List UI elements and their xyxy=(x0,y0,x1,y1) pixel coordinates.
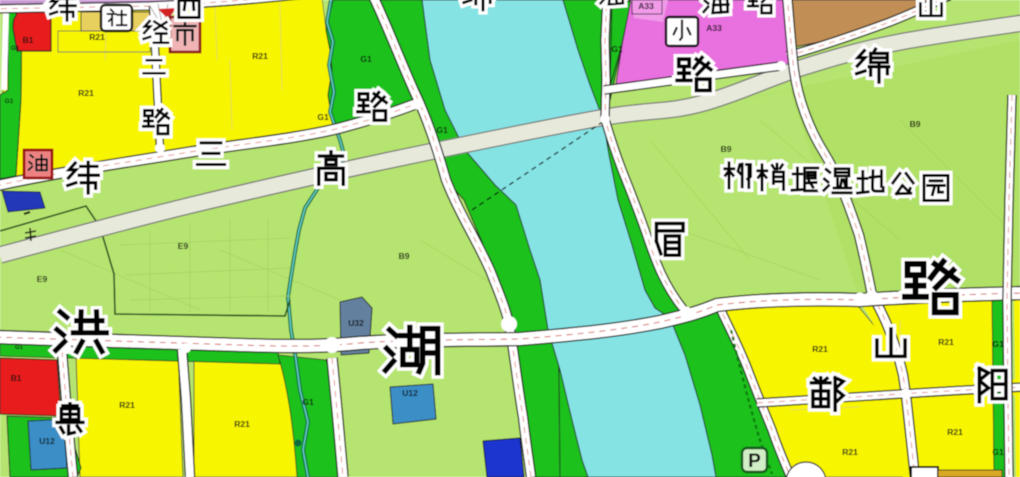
svg-text:R21: R21 xyxy=(947,427,963,437)
svg-text:R21: R21 xyxy=(78,88,94,98)
svg-text:R21: R21 xyxy=(234,419,250,429)
svg-text:U12: U12 xyxy=(402,388,418,398)
svg-text:R21: R21 xyxy=(842,447,858,457)
svg-text:R21: R21 xyxy=(812,344,828,354)
svg-text:G1: G1 xyxy=(992,447,1004,457)
svg-text:R21: R21 xyxy=(119,400,135,410)
svg-text:A33: A33 xyxy=(706,23,722,33)
svg-text:R21: R21 xyxy=(89,32,105,42)
svg-text:G1: G1 xyxy=(302,397,314,407)
svg-text:U32: U32 xyxy=(348,318,364,328)
svg-text:E9: E9 xyxy=(178,241,189,251)
svg-text:E9: E9 xyxy=(37,274,48,284)
svg-text:A33: A33 xyxy=(638,1,654,11)
svg-text:B9: B9 xyxy=(721,144,732,154)
svg-text:U12: U12 xyxy=(39,436,55,446)
svg-text:B9: B9 xyxy=(399,251,410,261)
svg-text:G1: G1 xyxy=(11,45,20,52)
svg-text:G1: G1 xyxy=(317,112,329,122)
svg-text:G1: G1 xyxy=(5,98,14,105)
svg-text:B1: B1 xyxy=(23,35,34,45)
svg-text:G1: G1 xyxy=(436,125,448,135)
svg-text:G1: G1 xyxy=(15,345,24,351)
svg-text:P: P xyxy=(748,451,761,472)
svg-text:G1: G1 xyxy=(992,339,1004,349)
svg-text:G1: G1 xyxy=(360,54,372,64)
svg-text:R21: R21 xyxy=(938,337,954,347)
svg-text:B9: B9 xyxy=(910,119,921,129)
svg-text:G1: G1 xyxy=(611,44,623,54)
svg-text:B1: B1 xyxy=(11,373,22,383)
svg-text:R21: R21 xyxy=(252,51,268,61)
